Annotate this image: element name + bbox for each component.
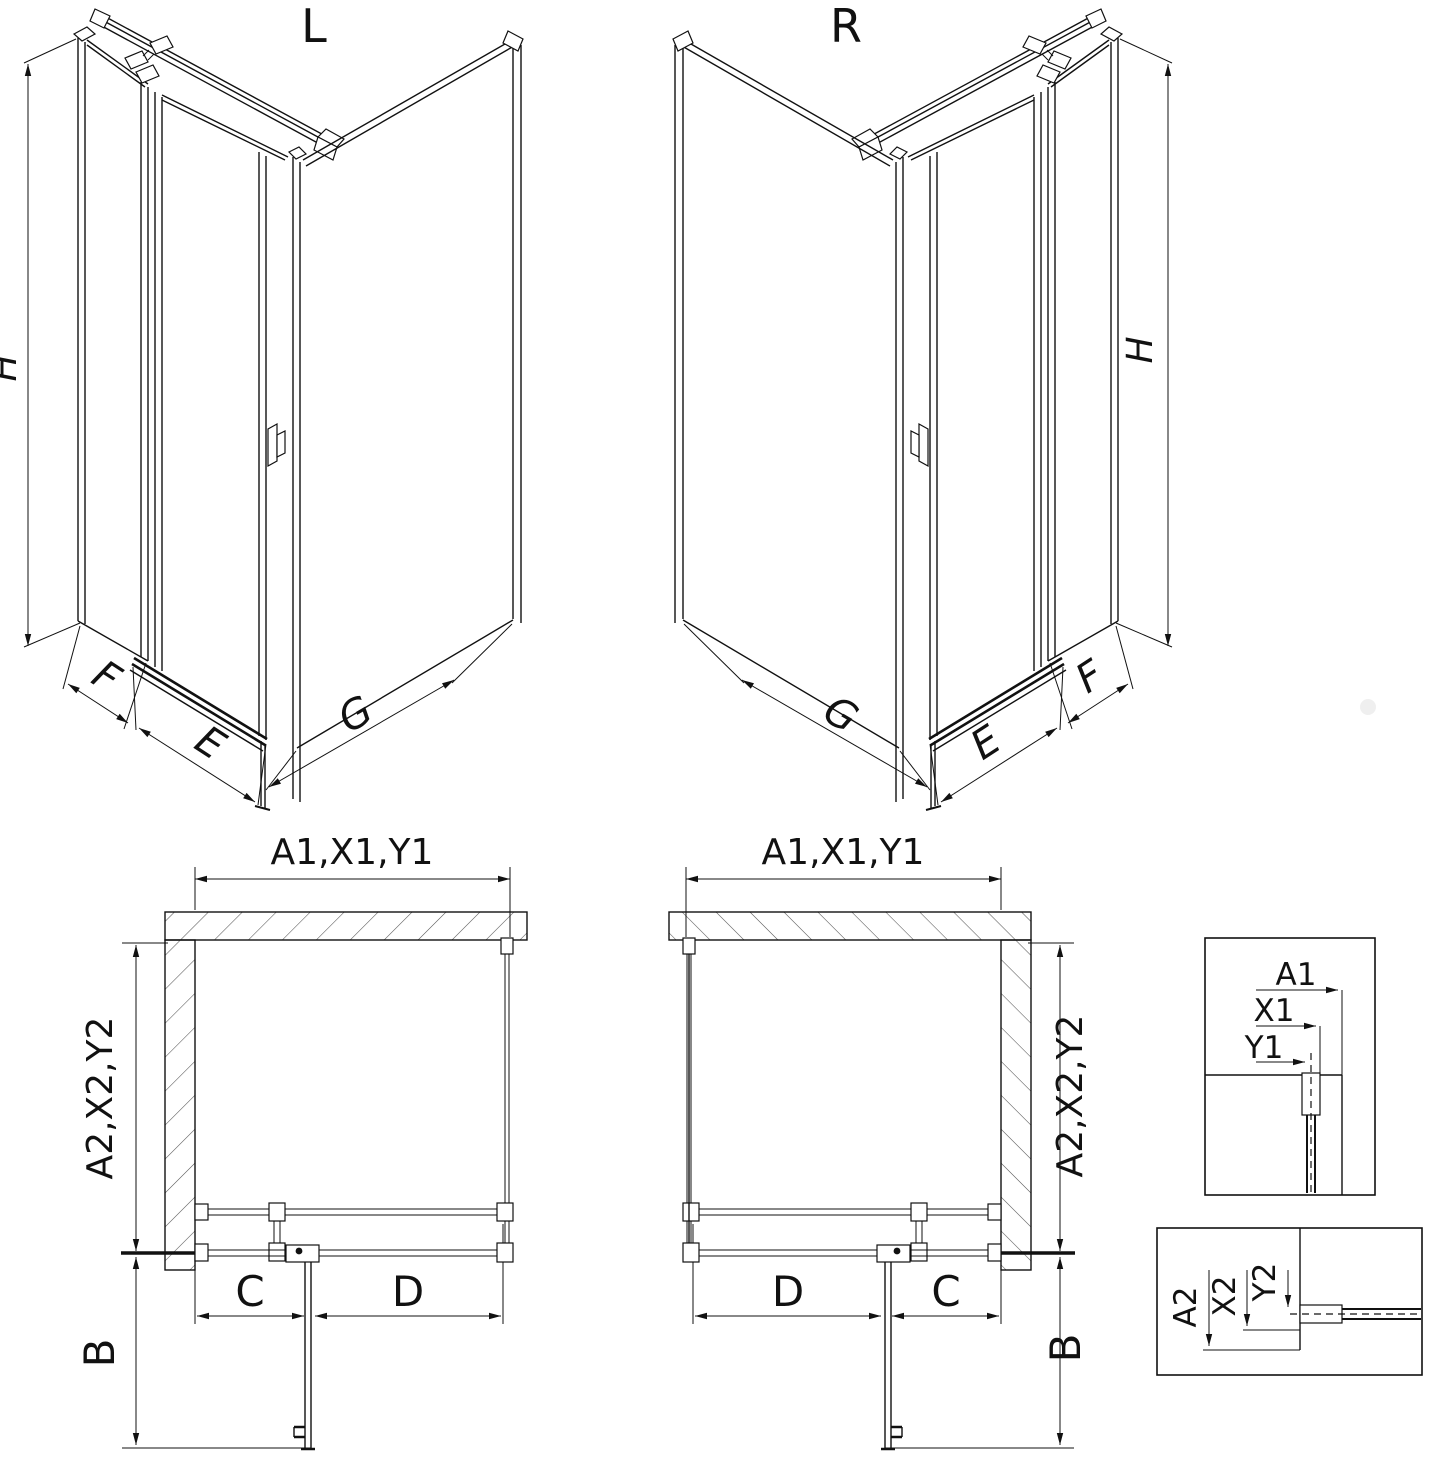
plan-right-door-open-dim: B [1041, 1334, 1090, 1363]
detail-top-a-label: A1 [1276, 957, 1317, 993]
detail-top-y-label: Y1 [1244, 1030, 1284, 1066]
dim-label-height-right: H [1120, 336, 1161, 363]
dim-label-side-panel-left: F [84, 652, 129, 704]
detail-box-wall-top: A1 X1 Y1 [1205, 938, 1375, 1195]
plan-left-fixed-dim: C [235, 1267, 264, 1316]
plan-left-top-dim: A1,X1,Y1 [271, 832, 434, 873]
dim-label-front-right: E [963, 717, 1010, 770]
plan-right-fixed-dim: C [931, 1267, 960, 1316]
detail-box-wall-side: A2 X2 Y2 [1157, 1228, 1422, 1375]
dim-label-front-left: E [187, 717, 234, 770]
dim-label-side-panel-right: F [1068, 651, 1113, 703]
plan-left-door-dim: D [392, 1267, 424, 1316]
plan-right-side-dim: A2,X2,Y2 [1050, 1015, 1091, 1178]
plan-right-door-dim: D [772, 1267, 804, 1316]
watermark-dot [1360, 699, 1376, 715]
dim-label-return-panel-left: G [331, 687, 381, 742]
detail-side-y-label: Y2 [1247, 1263, 1283, 1303]
dim-label-height-left: H [0, 354, 25, 381]
dim-label-return-panel-right: G [816, 687, 866, 742]
plan-right-top-dim: A1,X1,Y1 [762, 832, 925, 873]
plan-view-left: A1,X1,Y1 A2,X2,Y2 C D B [75, 832, 527, 1449]
variant-left-label: L [301, 0, 327, 53]
technical-drawing-page: L H F E G R H F E G A1,X1,Y1 A2,X2,Y2 C … [0, 0, 1430, 1460]
detail-side-x-label: X2 [1207, 1276, 1243, 1317]
plan-left-side-dim: A2,X2,Y2 [80, 1017, 121, 1180]
iso-view-left: L H F E G [0, 0, 523, 810]
variant-right-label: R [830, 0, 862, 53]
iso-view-right: R H F E G [673, 0, 1172, 810]
detail-top-x-label: X1 [1254, 993, 1295, 1029]
plan-left-door-open-dim: B [75, 1339, 124, 1368]
plan-view-right: A1,X1,Y1 A2,X2,Y2 D C B [669, 832, 1091, 1449]
shower-enclosure-dimension-diagram: L H F E G R H F E G A1,X1,Y1 A2,X2,Y2 C … [0, 0, 1430, 1460]
detail-side-a-label: A2 [1168, 1287, 1204, 1328]
